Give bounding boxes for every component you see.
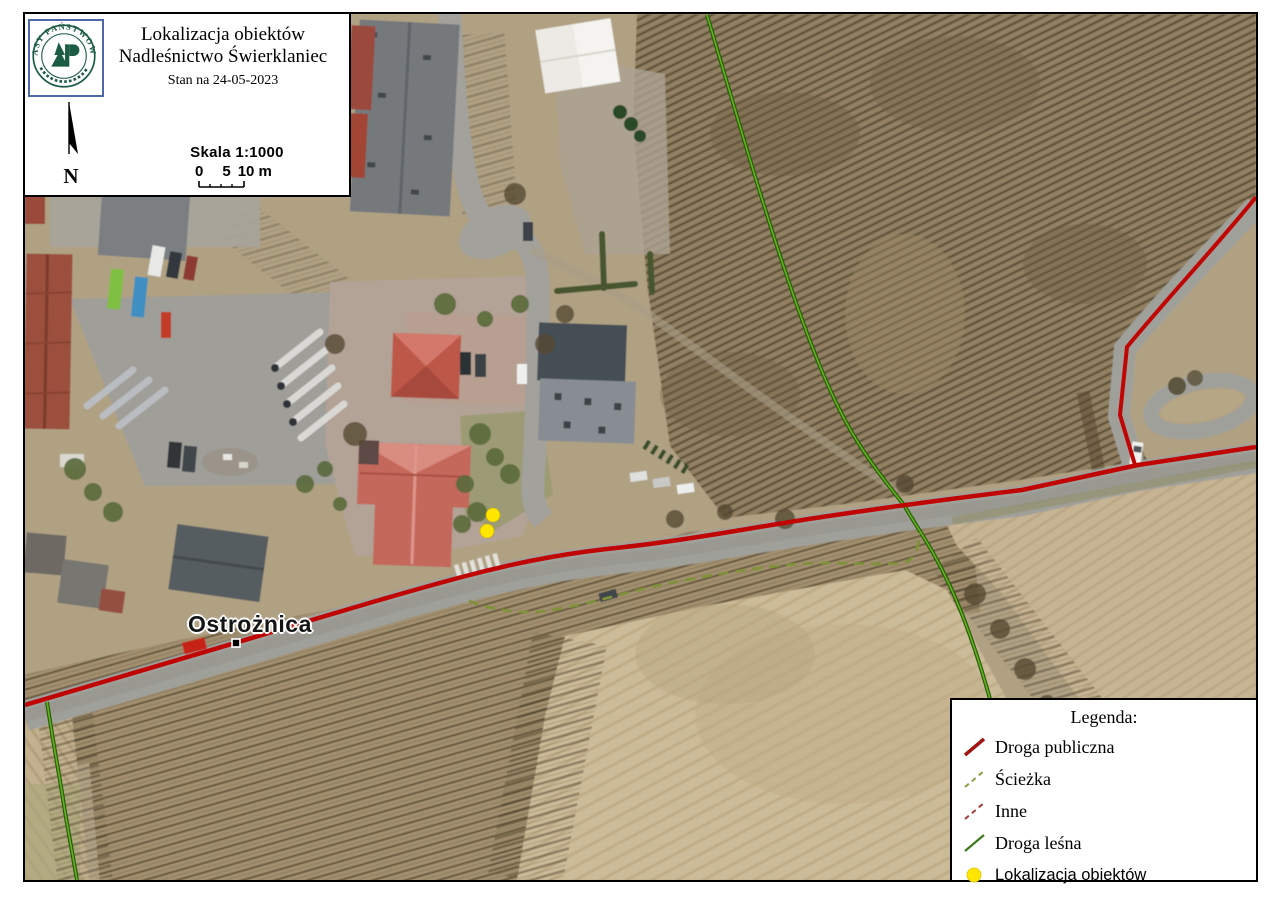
legend-item-public-road: Droga publiczna [952, 731, 1256, 763]
scale-tick-5: 5 [222, 163, 230, 180]
object-marker[interactable] [486, 508, 500, 522]
scale-block: Skala 1:1000 0 5 10 m [137, 144, 337, 188]
legend-item-label: Ścieżka [995, 769, 1051, 790]
legend-item-label: Droga leśna [995, 833, 1081, 854]
svg-text:LASY PAŃSTWOWE: LASY PAŃSTWOWE [30, 21, 98, 56]
place-marker [232, 639, 240, 647]
map-title-line2: Nadleśnictwo Świerklaniec [103, 46, 343, 68]
legend-item-label: Droga publiczna [995, 737, 1114, 758]
legend-item-other: Inne [952, 795, 1256, 827]
north-arrow: N [51, 102, 91, 192]
map-date: Stan na 24-05-2023 [103, 73, 343, 89]
state-forests-logo: LASY PAŃSTWOWE [28, 19, 104, 97]
title-box: LASY PAŃSTWOWE Lokalizacja obiektów Nadl… [25, 14, 351, 197]
logo-tree-glyph [51, 42, 79, 66]
path-swatch-icon [961, 768, 989, 790]
object-marker[interactable] [480, 524, 494, 538]
north-label: N [51, 164, 91, 189]
map-title-line1: Lokalizacja obiektów [103, 24, 343, 46]
logo-ring-text: LASY PAŃSTWOWE [30, 21, 98, 56]
map-frame: Ostrożnica LASY PAŃSTWOWE [23, 12, 1258, 882]
map-title: Lokalizacja obiektów Nadleśnictwo Świerk… [103, 24, 343, 89]
other-swatch-icon [961, 800, 989, 822]
scale-ticks: 0 5 10 m [137, 163, 337, 180]
public-road-swatch-icon [961, 736, 989, 758]
object-location-swatch-icon [961, 864, 989, 886]
north-arrow-icon [58, 102, 84, 160]
legend-item-label: Inne [995, 801, 1027, 822]
legend-item-label: Lokalizacja obiektów [995, 866, 1146, 885]
legend-item-path: Ścieżka [952, 763, 1256, 795]
legend-item-object-location: Lokalizacja obiektów [952, 859, 1256, 891]
forest-road-swatch-icon [961, 832, 989, 854]
scale-bar [198, 180, 246, 188]
scale-label: Skala 1:1000 [137, 144, 337, 161]
legend-title: Legenda: [952, 707, 1256, 728]
scale-tick-0: 0 [195, 163, 203, 180]
page: Ostrożnica LASY PAŃSTWOWE [0, 0, 1277, 897]
legend-item-forest-road: Droga leśna [952, 827, 1256, 859]
legend: Legenda: Droga publiczna Ścieżka [950, 698, 1256, 880]
place-label: Ostrożnica [188, 611, 312, 638]
scale-tick-10: 10 m [238, 163, 272, 180]
state-forests-logo-icon: LASY PAŃSTWOWE [30, 21, 98, 91]
